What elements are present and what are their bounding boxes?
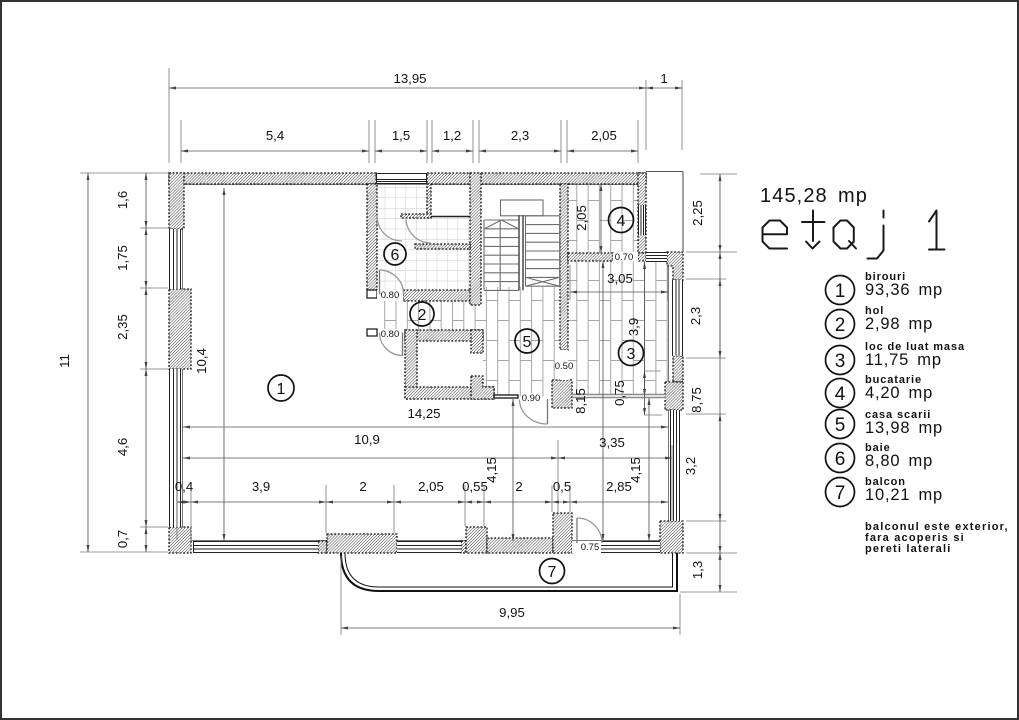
svg-text:8,80 mp: 8,80 mp — [865, 452, 933, 470]
svg-text:10,4: 10,4 — [194, 348, 209, 374]
svg-text:5: 5 — [835, 415, 846, 436]
svg-text:0.80: 0.80 — [381, 329, 400, 340]
svg-text:145,28 mp: 145,28 mp — [760, 185, 868, 207]
svg-text:5: 5 — [523, 334, 532, 351]
svg-text:3,05: 3,05 — [607, 271, 633, 286]
svg-text:2: 2 — [515, 479, 522, 494]
svg-text:1: 1 — [277, 381, 286, 398]
svg-text:6: 6 — [391, 247, 400, 264]
svg-text:9,95: 9,95 — [499, 605, 525, 620]
svg-text:13,98 mp: 13,98 mp — [865, 419, 943, 437]
svg-text:0,5: 0,5 — [553, 479, 571, 494]
svg-text:2,05: 2,05 — [574, 205, 589, 231]
svg-text:6: 6 — [835, 449, 846, 470]
svg-text:2,3: 2,3 — [511, 128, 529, 143]
svg-text:0,7: 0,7 — [115, 530, 130, 548]
svg-text:0.50: 0.50 — [555, 361, 574, 372]
svg-text:8,75: 8,75 — [689, 387, 704, 413]
svg-text:3,2: 3,2 — [683, 457, 698, 475]
svg-text:93,36 mp: 93,36 mp — [865, 281, 943, 299]
svg-text:2: 2 — [835, 315, 846, 336]
svg-text:pereti laterali: pereti laterali — [865, 543, 951, 555]
svg-text:4,6: 4,6 — [115, 438, 130, 456]
svg-text:8,15: 8,15 — [573, 388, 588, 414]
svg-text:1,3: 1,3 — [690, 561, 705, 579]
svg-text:2: 2 — [418, 307, 427, 324]
svg-text:2,3: 2,3 — [688, 307, 703, 325]
svg-text:4,15: 4,15 — [628, 457, 643, 483]
svg-text:3: 3 — [627, 346, 636, 363]
svg-text:3,9: 3,9 — [252, 479, 270, 494]
svg-text:4: 4 — [617, 213, 626, 230]
svg-text:10,9: 10,9 — [354, 432, 380, 447]
svg-text:1: 1 — [660, 71, 667, 86]
svg-text:2,98 mp: 2,98 mp — [865, 315, 933, 333]
svg-text:0.90: 0.90 — [522, 393, 541, 404]
svg-text:7: 7 — [548, 564, 557, 581]
svg-text:2,05: 2,05 — [418, 479, 444, 494]
svg-text:2,35: 2,35 — [115, 314, 130, 340]
svg-text:14,25: 14,25 — [407, 406, 440, 421]
svg-text:1,2: 1,2 — [443, 128, 461, 143]
svg-text:0.70: 0.70 — [615, 252, 634, 263]
svg-text:11,75 mp: 11,75 mp — [865, 351, 942, 369]
svg-text:1,6: 1,6 — [115, 191, 130, 209]
svg-text:2,05: 2,05 — [591, 128, 617, 143]
svg-text:3: 3 — [835, 351, 846, 372]
svg-text:1,5: 1,5 — [392, 128, 410, 143]
svg-text:7: 7 — [835, 483, 846, 504]
svg-text:13,95: 13,95 — [393, 71, 426, 86]
svg-text:1: 1 — [835, 281, 846, 302]
svg-text:4,15: 4,15 — [484, 457, 499, 483]
svg-text:3,9: 3,9 — [626, 318, 641, 336]
svg-text:0.75: 0.75 — [581, 542, 600, 553]
svg-text:0,4: 0,4 — [175, 479, 193, 494]
svg-text:2: 2 — [359, 479, 366, 494]
svg-text:2,25: 2,25 — [690, 200, 705, 226]
svg-text:4,20 mp: 4,20 mp — [865, 384, 933, 402]
svg-text:11: 11 — [57, 354, 72, 368]
svg-text:1,75: 1,75 — [115, 245, 130, 271]
svg-text:4: 4 — [835, 384, 846, 405]
svg-text:5,4: 5,4 — [266, 128, 284, 143]
svg-text:3,35: 3,35 — [599, 435, 625, 450]
svg-text:10,21 mp: 10,21 mp — [865, 486, 943, 504]
svg-text:0,75: 0,75 — [612, 380, 627, 406]
svg-text:0.80: 0.80 — [381, 290, 400, 301]
